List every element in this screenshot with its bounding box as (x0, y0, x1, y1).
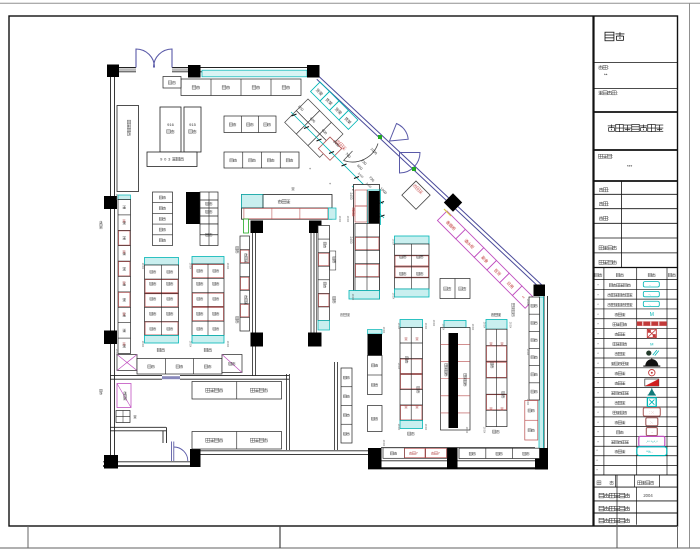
svg-text:200X: 200X (141, 263, 145, 270)
svg-text:***: *** (627, 164, 633, 169)
svg-text:200X: 200X (189, 341, 193, 348)
svg-text::: : (617, 91, 618, 96)
svg-text::: : (608, 188, 609, 193)
svg-text:200X: 200X (141, 341, 145, 348)
svg-text::: : (608, 202, 609, 207)
svg-text:200X: 200X (338, 216, 342, 223)
svg-text:200X: 200X (432, 320, 436, 327)
svg-text:*%...: *%... (646, 450, 653, 454)
svg-text:2004: 2004 (643, 493, 653, 498)
svg-text:200X: 200X (465, 427, 469, 434)
svg-text:2400: 2400 (349, 192, 353, 199)
svg-text:200X: 200X (397, 363, 401, 370)
svg-text:200X: 200X (115, 349, 119, 356)
svg-text:200X: 200X (424, 424, 428, 431)
svg-text:200X: 200X (526, 349, 530, 356)
svg-text:200X: 200X (392, 239, 396, 246)
svg-text:200X: 200X (526, 299, 530, 306)
svg-text:200X: 200X (115, 194, 119, 201)
svg-text:200X: 200X (526, 399, 530, 406)
svg-text:200X: 200X (346, 216, 350, 223)
svg-text:200X: 200X (471, 324, 475, 331)
svg-text:200X: 200X (351, 294, 355, 301)
svg-text:200X: 200X (382, 327, 386, 334)
svg-text:: :-:: : :-: (649, 411, 654, 415)
svg-text:-.,: -., (648, 303, 651, 307)
svg-text:200X: 200X (226, 263, 230, 270)
svg-text::: : (608, 65, 609, 70)
svg-text:200X: 200X (483, 322, 487, 329)
svg-text::: : (612, 154, 613, 159)
svg-text:.-: .- (651, 430, 653, 434)
svg-text:200X: 200X (483, 427, 487, 434)
svg-text:200X: 200X (397, 424, 401, 431)
svg-text:200X: 200X (509, 322, 513, 329)
svg-text:2400: 2400 (349, 236, 353, 243)
svg-text:--,: --, (648, 293, 651, 297)
svg-text:200X: 200X (424, 323, 428, 330)
svg-text:200X: 200X (382, 440, 386, 447)
svg-text:M: M (650, 341, 653, 346)
svg-text:**: ** (604, 73, 608, 78)
svg-text:-** *=*-*: -** *=*-* (646, 440, 658, 444)
svg-text::: : (608, 216, 609, 221)
svg-text:--: -- (649, 283, 651, 287)
svg-text::-.: :-. (650, 420, 653, 424)
svg-text:M: M (650, 312, 654, 318)
svg-text:200X: 200X (189, 263, 193, 270)
svg-text:916: 916 (167, 122, 174, 127)
svg-text:200X: 200X (397, 323, 401, 330)
svg-text:200X: 200X (226, 341, 230, 348)
svg-text:200X: 200X (392, 293, 396, 300)
svg-text:200X: 200X (442, 324, 446, 331)
svg-text:915: 915 (189, 122, 196, 127)
